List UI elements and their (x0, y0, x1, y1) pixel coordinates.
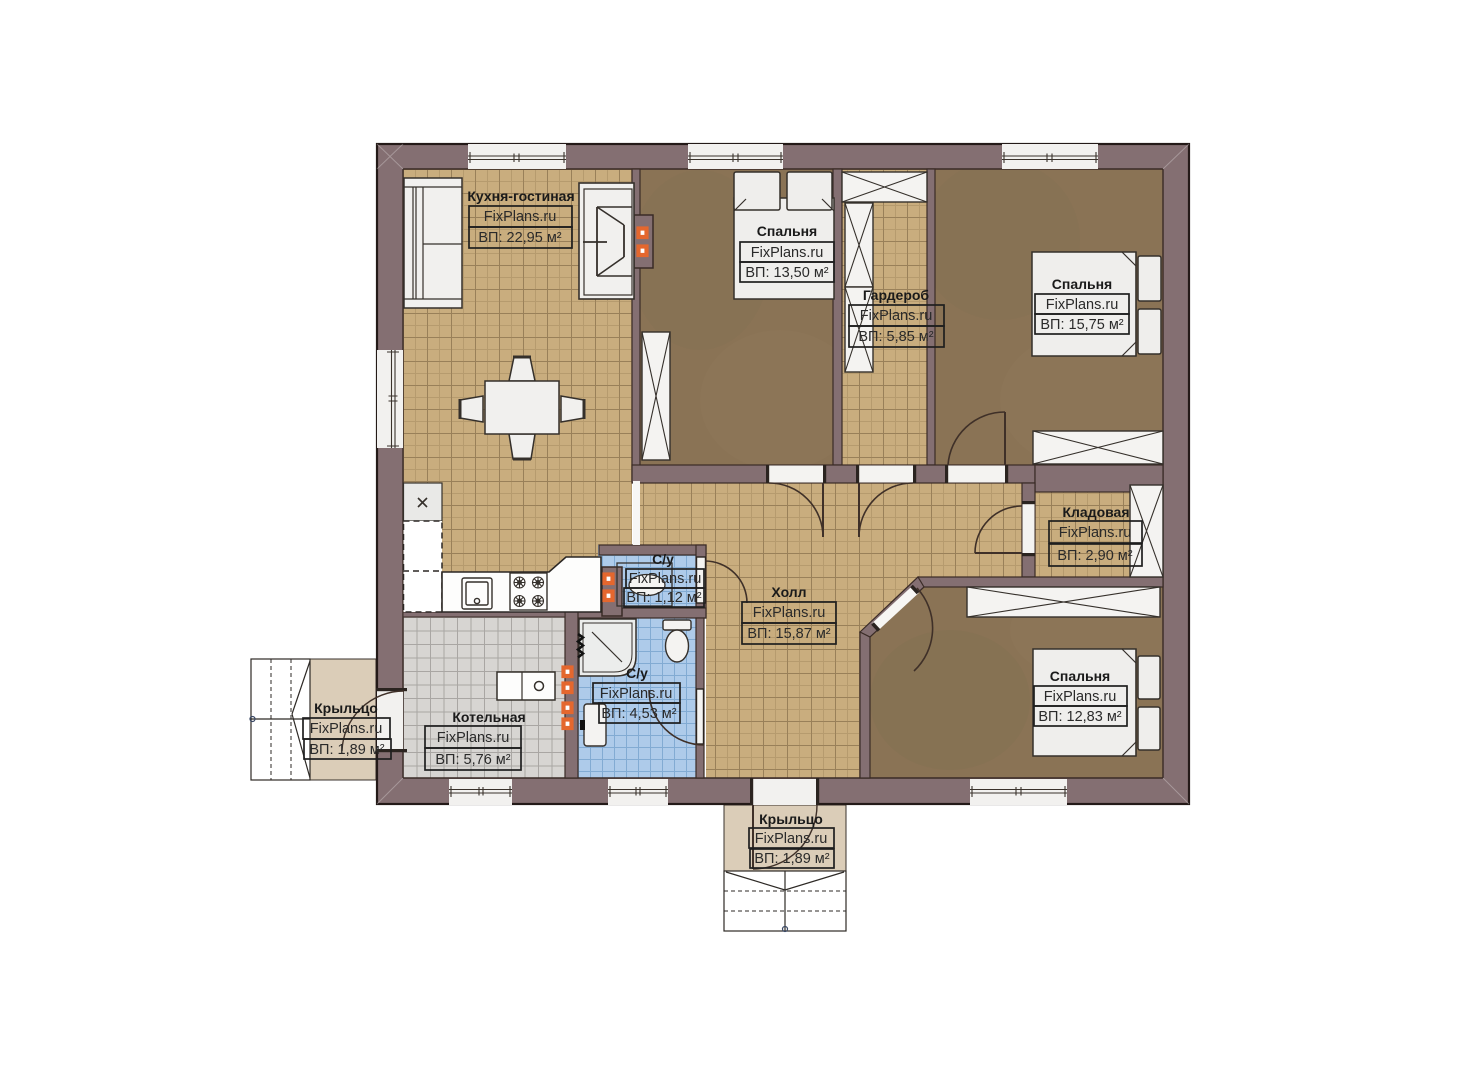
svg-text:Спальня: Спальня (1050, 668, 1110, 684)
svg-text:Кухня-гостиная: Кухня-гостиная (467, 188, 574, 204)
svg-text:ВП: 15,87 м²: ВП: 15,87 м² (747, 626, 830, 642)
svg-text:FixPlans.ru: FixPlans.ru (751, 245, 824, 261)
svg-text:FixPlans.ru: FixPlans.ru (755, 831, 828, 847)
svg-text:FixPlans.ru: FixPlans.ru (753, 605, 826, 621)
svg-text:Котельная: Котельная (452, 709, 525, 725)
svg-text:FixPlans.ru: FixPlans.ru (629, 571, 702, 587)
svg-text:ВП: 2,90 м²: ВП: 2,90 м² (1057, 548, 1132, 564)
svg-text:FixPlans.ru: FixPlans.ru (600, 686, 673, 702)
svg-text:FixPlans.ru: FixPlans.ru (484, 209, 557, 225)
svg-text:ВП: 4,53 м²: ВП: 4,53 м² (601, 706, 676, 722)
svg-text:Спальня: Спальня (757, 223, 817, 239)
svg-text:ВП: 1,12 м²: ВП: 1,12 м² (626, 590, 701, 606)
svg-text:Крыльцо: Крыльцо (759, 811, 823, 827)
svg-text:Крыльцо: Крыльцо (314, 700, 378, 716)
svg-text:FixPlans.ru: FixPlans.ru (1044, 689, 1117, 705)
svg-text:ВП: 15,75 м²: ВП: 15,75 м² (1040, 317, 1123, 333)
svg-text:ВП: 13,50 м²: ВП: 13,50 м² (745, 265, 828, 281)
svg-text:ВП: 12,83 м²: ВП: 12,83 м² (1038, 709, 1121, 725)
svg-text:FixPlans.ru: FixPlans.ru (1046, 297, 1119, 313)
svg-text:С/у: С/у (652, 551, 674, 567)
svg-text:ВП: 5,85 м²: ВП: 5,85 м² (858, 329, 933, 345)
svg-text:Холл: Холл (771, 584, 806, 600)
svg-text:FixPlans.ru: FixPlans.ru (1059, 525, 1132, 541)
svg-text:FixPlans.ru: FixPlans.ru (437, 730, 510, 746)
svg-text:ВП: 1,89 м²: ВП: 1,89 м² (754, 851, 829, 867)
svg-text:FixPlans.ru: FixPlans.ru (310, 721, 383, 737)
svg-text:ВП: 22,95 м²: ВП: 22,95 м² (478, 230, 561, 246)
svg-text:Спальня: Спальня (1052, 276, 1112, 292)
svg-text:FixPlans.ru: FixPlans.ru (860, 308, 933, 324)
svg-text:ВП: 1,89 м²: ВП: 1,89 м² (309, 742, 384, 758)
svg-text:Гардероб: Гардероб (863, 287, 930, 303)
svg-text:С/у: С/у (626, 665, 648, 681)
svg-text:Кладовая: Кладовая (1062, 504, 1129, 520)
svg-text:ВП: 5,76 м²: ВП: 5,76 м² (435, 752, 510, 768)
